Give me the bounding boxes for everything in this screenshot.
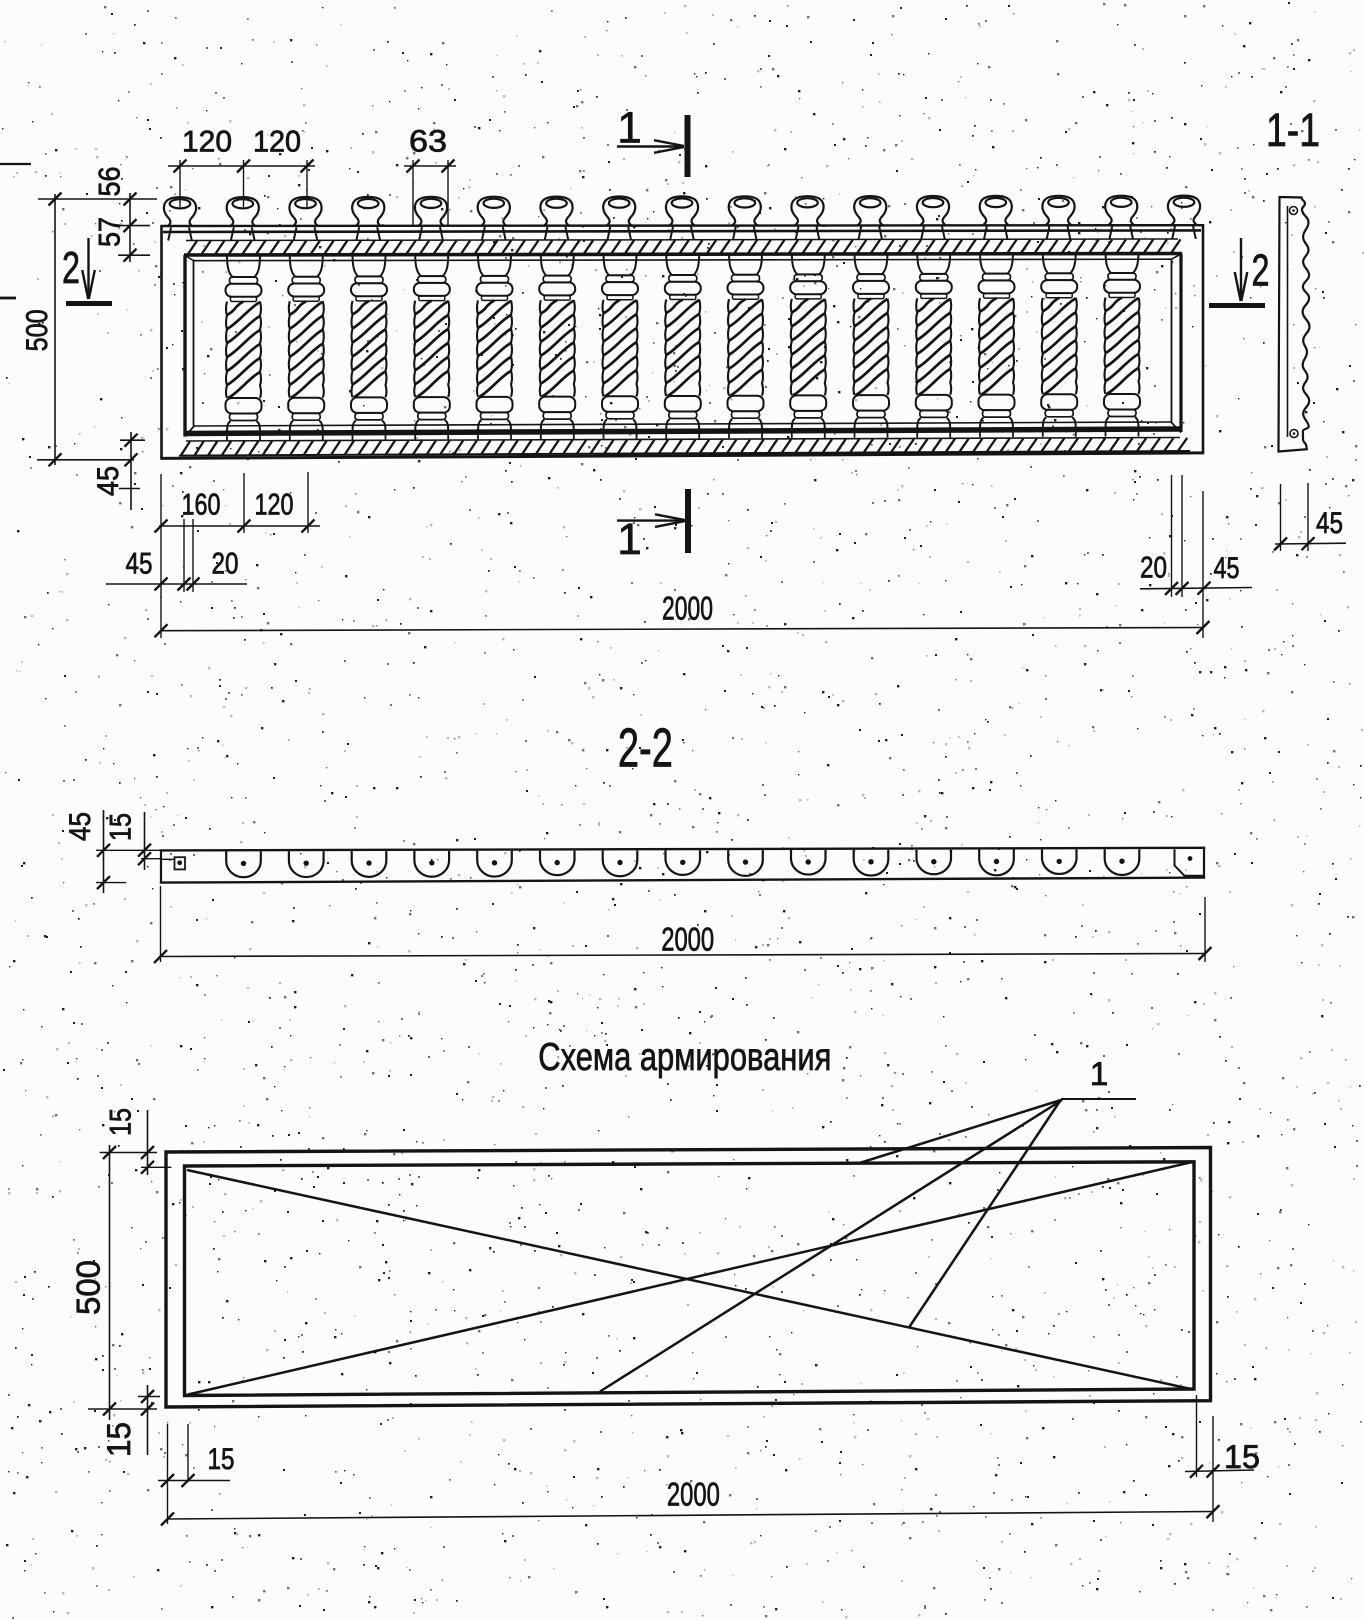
svg-text:45: 45 bbox=[1316, 507, 1343, 540]
svg-text:15: 15 bbox=[100, 1422, 137, 1457]
svg-text:1-1: 1-1 bbox=[1266, 103, 1320, 156]
svg-text:1: 1 bbox=[617, 515, 641, 564]
svg-text:160: 160 bbox=[182, 489, 221, 522]
svg-text:57: 57 bbox=[94, 217, 127, 247]
svg-text:120: 120 bbox=[255, 489, 294, 522]
svg-text:120: 120 bbox=[253, 126, 301, 159]
svg-text:500: 500 bbox=[70, 1260, 107, 1315]
svg-text:45: 45 bbox=[126, 548, 153, 581]
svg-text:15: 15 bbox=[208, 1443, 235, 1476]
svg-text:20: 20 bbox=[1140, 552, 1167, 585]
svg-text:2000: 2000 bbox=[661, 921, 714, 958]
svg-text:500: 500 bbox=[21, 309, 54, 351]
svg-text:15: 15 bbox=[105, 1108, 138, 1136]
svg-text:2: 2 bbox=[1252, 245, 1270, 296]
svg-text:1: 1 bbox=[1090, 1055, 1108, 1092]
svg-text:63: 63 bbox=[409, 124, 447, 159]
svg-text:2000: 2000 bbox=[667, 1476, 720, 1513]
svg-text:45: 45 bbox=[92, 466, 125, 496]
svg-text:2-2: 2-2 bbox=[618, 717, 673, 779]
svg-text:45: 45 bbox=[1214, 552, 1240, 585]
svg-text:120: 120 bbox=[182, 126, 232, 159]
svg-text:15: 15 bbox=[105, 813, 138, 841]
svg-text:15: 15 bbox=[1224, 1438, 1260, 1475]
svg-text:1: 1 bbox=[617, 104, 641, 153]
svg-text:45: 45 bbox=[64, 812, 97, 841]
svg-text:56: 56 bbox=[94, 167, 127, 197]
svg-text:Схема армирования: Схема армирования bbox=[538, 1036, 831, 1079]
svg-text:20: 20 bbox=[212, 548, 239, 581]
svg-text:2: 2 bbox=[62, 242, 80, 293]
svg-text:2000: 2000 bbox=[662, 590, 713, 627]
